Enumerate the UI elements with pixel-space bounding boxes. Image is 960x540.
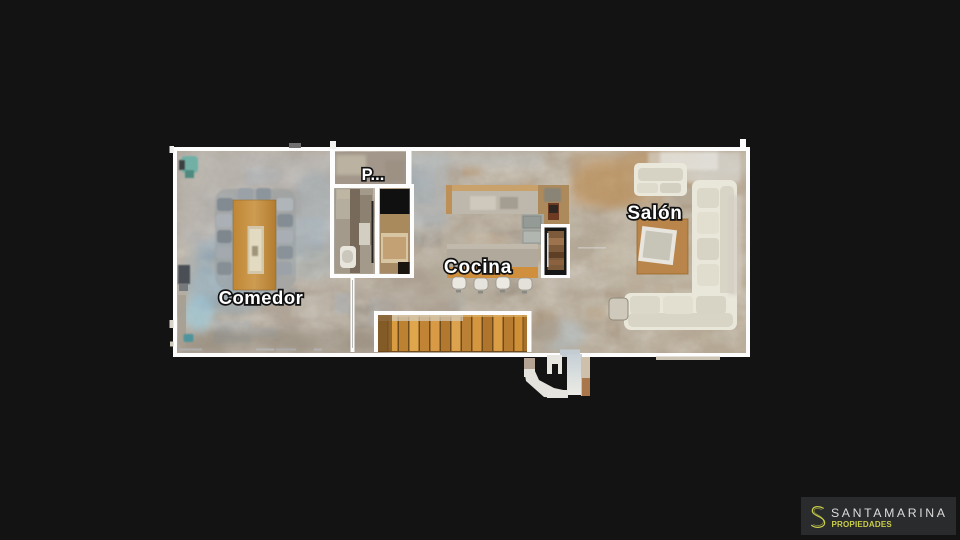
svg-text:Cocina: Cocina bbox=[444, 257, 512, 278]
svg-text:SANTAMARINA: SANTAMARINA bbox=[831, 506, 948, 520]
svg-text:PROPIEDADES: PROPIEDADES bbox=[832, 520, 893, 529]
svg-text:P...: P... bbox=[362, 166, 385, 184]
svg-text:Comedor: Comedor bbox=[219, 287, 304, 308]
svg-text:Salón: Salón bbox=[627, 203, 682, 224]
